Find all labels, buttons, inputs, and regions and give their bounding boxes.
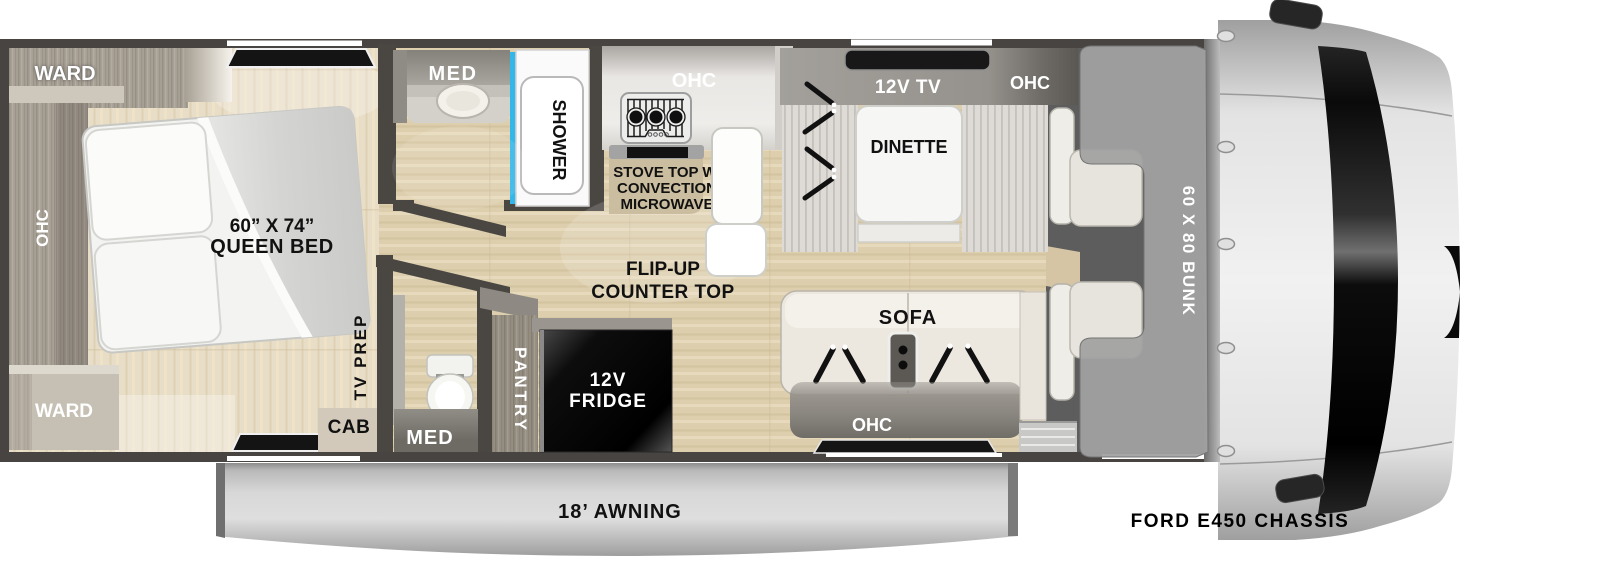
svg-text:WARD: WARD bbox=[35, 401, 93, 422]
svg-text:STOVE TOP W/: STOVE TOP W/ bbox=[613, 164, 721, 181]
svg-text:18’ AWNING: 18’ AWNING bbox=[558, 501, 682, 523]
svg-text:MED: MED bbox=[429, 63, 478, 85]
svg-text:CAB: CAB bbox=[328, 417, 371, 438]
svg-text:OHC: OHC bbox=[852, 415, 892, 435]
svg-text:60 X 80 BUNK: 60 X 80 BUNK bbox=[1179, 186, 1198, 316]
svg-text:OHC: OHC bbox=[672, 70, 716, 92]
svg-text:MED: MED bbox=[406, 427, 453, 449]
svg-text:COUNTER TOP: COUNTER TOP bbox=[591, 282, 734, 303]
svg-text:OHC: OHC bbox=[33, 209, 52, 247]
svg-text:MICROWAVE: MICROWAVE bbox=[620, 196, 713, 213]
svg-text:QUEEN BED: QUEEN BED bbox=[210, 236, 333, 258]
svg-text:SOFA: SOFA bbox=[879, 307, 937, 329]
svg-text:OHC: OHC bbox=[1010, 73, 1050, 93]
svg-text:CONVECTION: CONVECTION bbox=[617, 180, 717, 197]
svg-text:12V: 12V bbox=[590, 370, 627, 391]
svg-text:FORD E450 CHASSIS: FORD E450 CHASSIS bbox=[1131, 511, 1350, 532]
svg-text:PANTRY: PANTRY bbox=[511, 347, 530, 433]
svg-text:12V TV: 12V TV bbox=[875, 77, 941, 98]
svg-text:SHOWER: SHOWER bbox=[549, 100, 569, 181]
svg-text:FLIP-UP: FLIP-UP bbox=[626, 259, 700, 280]
svg-text:60” X 74”: 60” X 74” bbox=[230, 216, 315, 237]
svg-text:FRIDGE: FRIDGE bbox=[569, 391, 647, 412]
svg-text:TV PREP: TV PREP bbox=[351, 314, 370, 401]
svg-text:WARD: WARD bbox=[34, 63, 95, 85]
svg-text:DINETTE: DINETTE bbox=[870, 137, 947, 157]
